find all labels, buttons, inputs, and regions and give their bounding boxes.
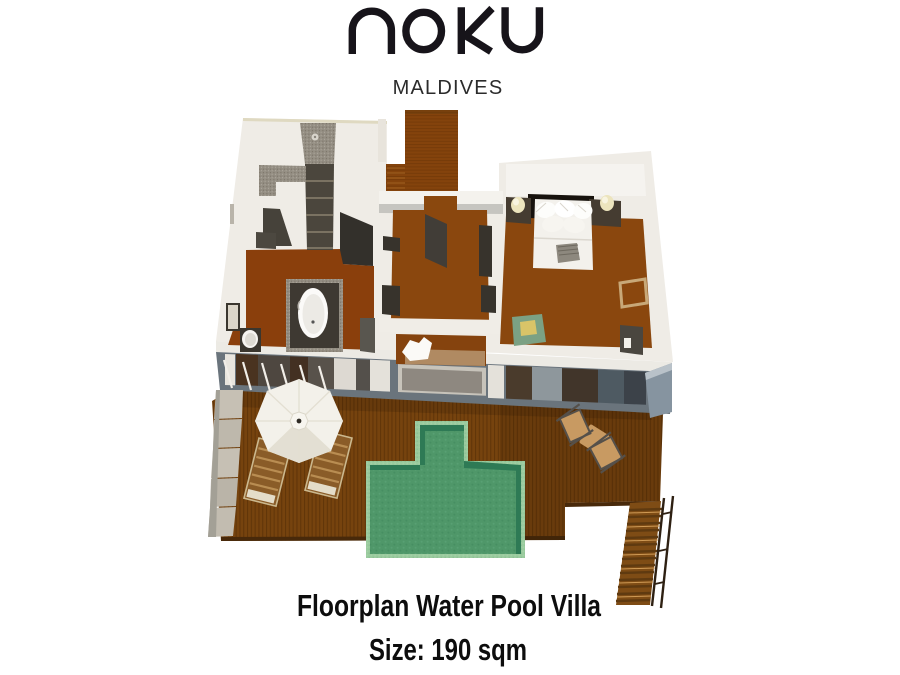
svg-text:Size: 190 sqm: Size: 190 sqm	[369, 632, 527, 667]
svg-text:MALDIVES: MALDIVES	[393, 77, 504, 99]
svg-text:Floorplan Water Pool Villa: Floorplan Water Pool Villa	[297, 588, 602, 623]
